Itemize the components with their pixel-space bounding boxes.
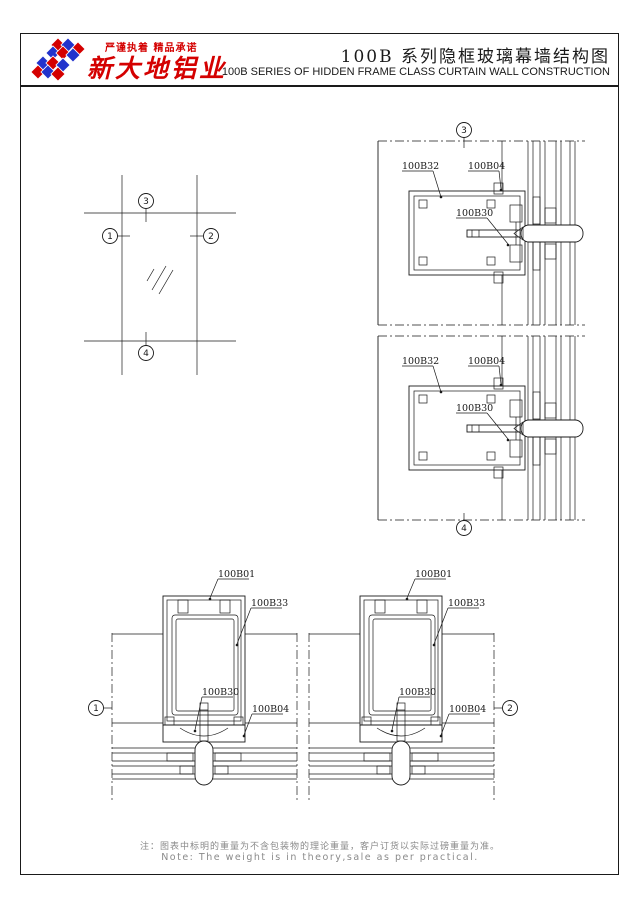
part-label-100B30: 100B30	[456, 208, 493, 219]
drawing-sheet: 严谨执着 精品承诺 新大地铝业 100B 系列隐框玻璃幕墙结构图 100B SE…	[0, 0, 640, 906]
detail-right-mullion-section: 100B01 100B33 100B30 100B04 2	[296, 558, 531, 813]
elevation-key-diagram: 3 1 2 4	[70, 168, 255, 383]
footer-note-en: Note: The weight is in theory,sale as pe…	[0, 852, 640, 864]
part-label-100B30: 100B30	[399, 687, 436, 698]
callout-bottom: 4	[143, 349, 149, 359]
part-label-100B30: 100B30	[202, 687, 239, 698]
part-label-100B04: 100B04	[449, 704, 486, 715]
part-label-100B33: 100B33	[448, 598, 485, 609]
part-label-100B01: 100B01	[218, 569, 255, 580]
detail-bottom-transom-section: 100B32 100B04 100B30 4	[375, 327, 605, 545]
part-label-100B04: 100B04	[252, 704, 289, 715]
drawing-title-en: 100B SERIES OF HIDDEN FRAME CLASS CURTAI…	[222, 66, 610, 78]
part-label-100B33: 100B33	[251, 598, 288, 609]
part-label-100B32: 100B32	[402, 161, 439, 172]
company-name: 新大地铝业	[87, 49, 227, 85]
detail1-callout: 1	[93, 704, 99, 714]
callout-right: 2	[208, 232, 214, 242]
detail4-callout: 4	[461, 524, 467, 534]
part-label-100B32: 100B32	[402, 356, 439, 367]
detail3-callout: 3	[461, 126, 467, 136]
detail-left-mullion-section: 100B01 100B33 100B30 100B04 1	[83, 558, 318, 813]
detail-top-transom-section: 3 100B32 100B04 100B30	[375, 120, 605, 335]
callout-top: 3	[143, 197, 149, 207]
drawing-title-cn: 100B 系列隐框玻璃幕墙结构图	[341, 42, 610, 67]
title-block: 严谨执着 精品承诺 新大地铝业 100B 系列隐框玻璃幕墙结构图 100B SE…	[21, 34, 618, 87]
part-label-100B04: 100B04	[468, 356, 505, 367]
footer-note-cn: 注：图表中标明的重量为不含包装物的理论重量，客户订货以实际过磅重量为准。	[0, 840, 640, 852]
company-logo-icon	[31, 38, 93, 84]
detail2-callout: 2	[507, 704, 513, 714]
part-label-100B04: 100B04	[468, 161, 505, 172]
part-label-100B01: 100B01	[415, 569, 452, 580]
callout-left: 1	[107, 232, 113, 242]
part-label-100B30: 100B30	[456, 403, 493, 414]
footer-note: 注：图表中标明的重量为不含包装物的理论重量，客户订货以实际过磅重量为准。 Not…	[0, 840, 640, 864]
